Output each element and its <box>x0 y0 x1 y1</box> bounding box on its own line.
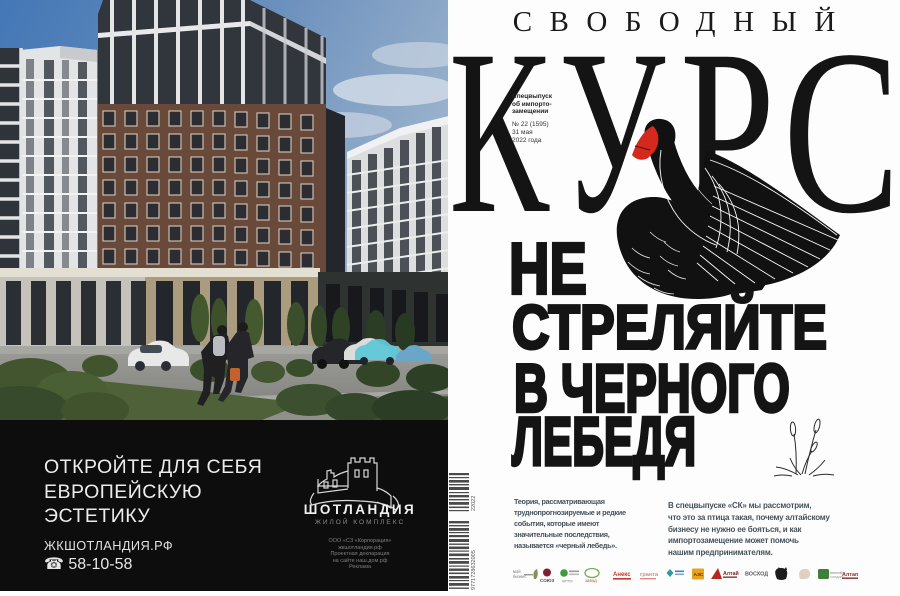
svg-text:Алтай: Алтай <box>723 570 739 577</box>
svg-text:АЗС: АЗС <box>694 572 704 578</box>
svg-text:Алтап: Алтап <box>842 572 858 578</box>
svg-text:9771728632005: 9771728632005 <box>471 550 476 590</box>
svg-text:Анекс: Анекс <box>613 572 631 578</box>
svg-text:центр: центр <box>562 578 574 583</box>
svg-text:22022: 22022 <box>471 496 476 511</box>
svg-text:СОЮЗ: СОЮЗ <box>540 578 555 583</box>
svg-text:ВОСХОД: ВОСХОД <box>745 572 768 578</box>
svg-text:завод: завод <box>585 578 597 583</box>
svg-text:гранта: гранта <box>640 572 659 578</box>
